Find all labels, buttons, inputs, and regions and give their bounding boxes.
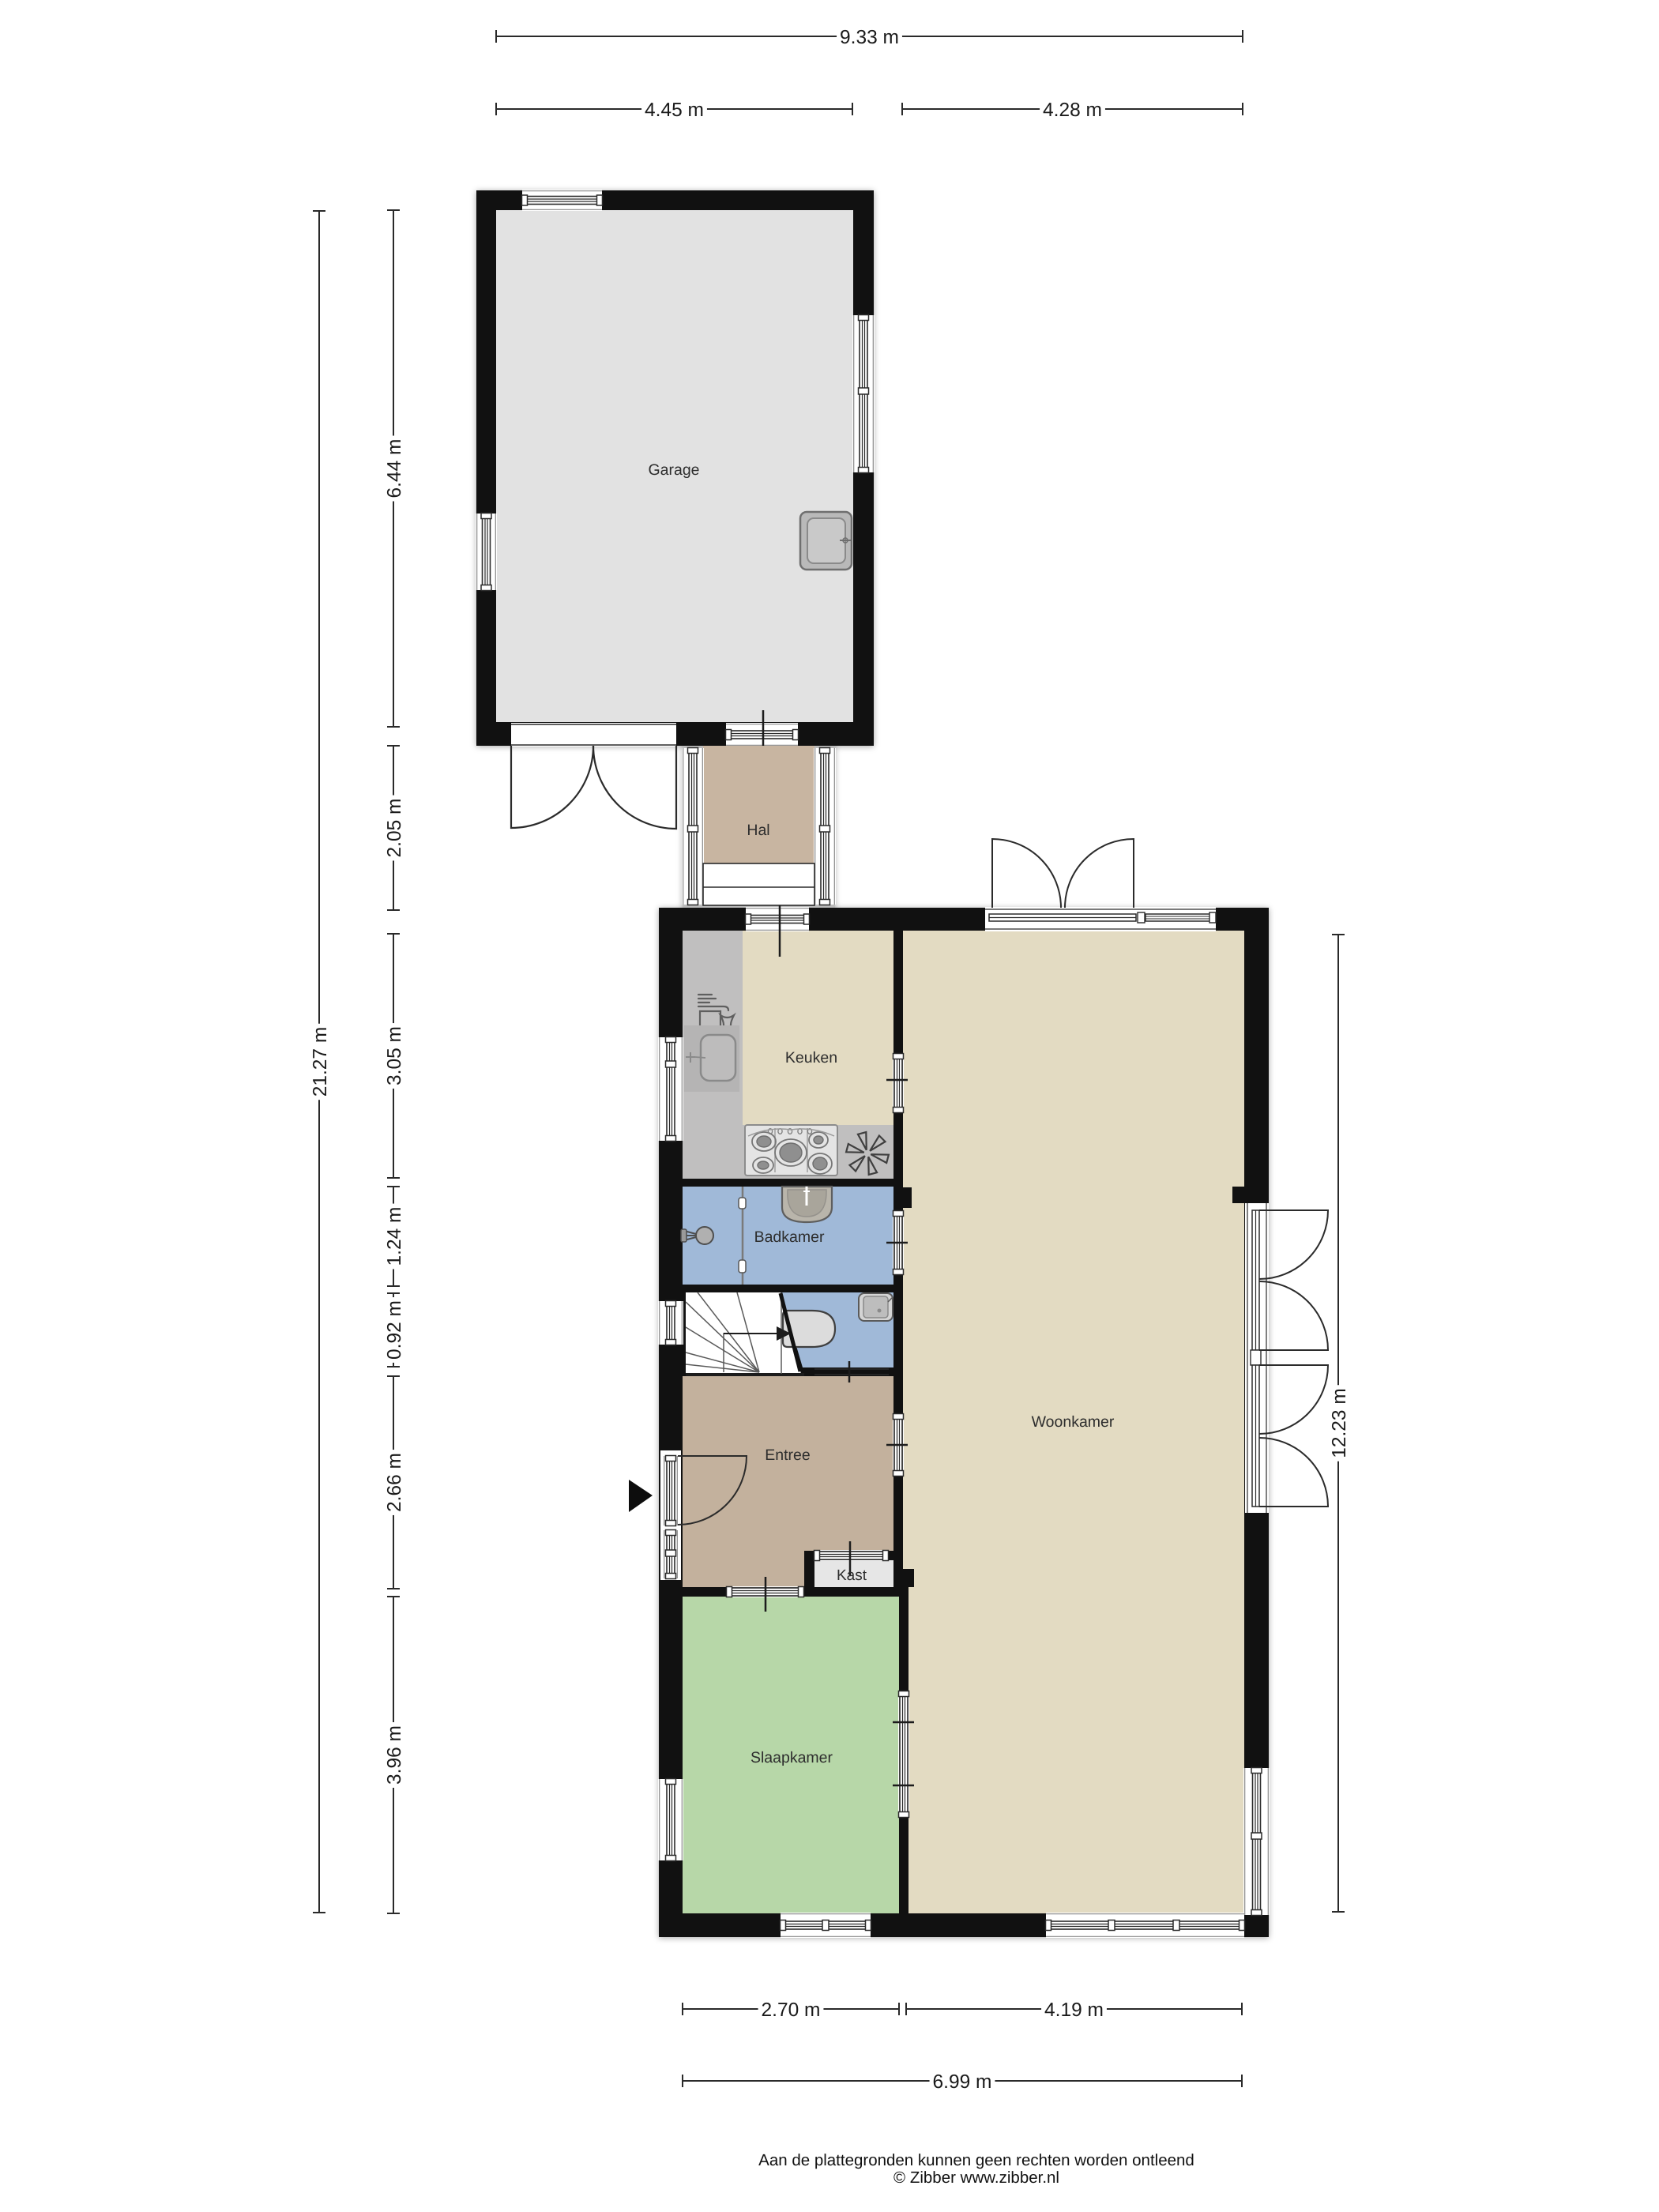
svg-text:3.96 m: 3.96 m <box>384 1725 405 1785</box>
svg-text:Garage: Garage <box>648 461 699 479</box>
svg-text:Aan de plattegronden kunnen ge: Aan de plattegronden kunnen geen rechten… <box>758 2151 1194 2169</box>
svg-text:4.19 m: 4.19 m <box>1044 1999 1104 2021</box>
svg-text:6.99 m: 6.99 m <box>933 2071 992 2093</box>
svg-text:4.45 m: 4.45 m <box>645 100 704 121</box>
svg-text:Badkamer: Badkamer <box>754 1228 825 1246</box>
svg-text:Entree: Entree <box>765 1446 810 1464</box>
svg-text:2.70 m: 2.70 m <box>762 1999 821 2021</box>
svg-text:4.28 m: 4.28 m <box>1043 100 1102 121</box>
svg-text:3.05 m: 3.05 m <box>384 1026 405 1085</box>
svg-text:9.33 m: 9.33 m <box>840 27 899 48</box>
svg-text:12.23 m: 12.23 m <box>1329 1388 1350 1458</box>
svg-text:Hal: Hal <box>747 822 769 839</box>
svg-text:Slaapkamer: Slaapkamer <box>750 1749 833 1766</box>
svg-text:© Zibber www.zibber.nl: © Zibber www.zibber.nl <box>893 2169 1059 2187</box>
svg-text:2.66 m: 2.66 m <box>384 1453 405 1512</box>
svg-text:2.05 m: 2.05 m <box>384 799 405 858</box>
svg-text:0.92 m: 0.92 m <box>384 1300 405 1360</box>
svg-text:6.44 m: 6.44 m <box>384 439 405 498</box>
svg-text:21.27 m: 21.27 m <box>310 1027 331 1097</box>
svg-text:Keuken: Keuken <box>785 1049 837 1066</box>
svg-text:1.24 m: 1.24 m <box>384 1207 405 1266</box>
svg-text:Woonkamer: Woonkamer <box>1032 1413 1115 1431</box>
svg-text:Kast: Kast <box>837 1567 867 1584</box>
